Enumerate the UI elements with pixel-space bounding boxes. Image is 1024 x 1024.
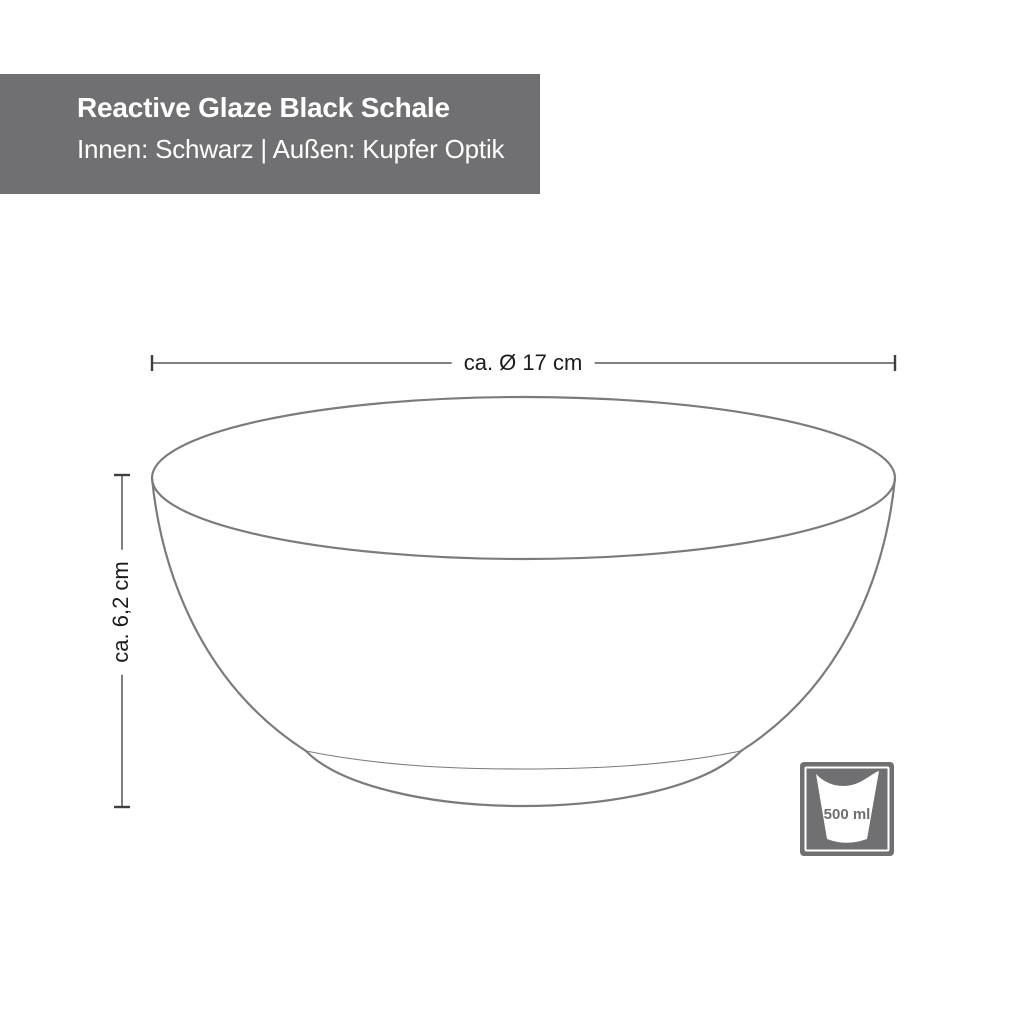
dimension-lines — [114, 355, 895, 807]
bowl-right-wall — [741, 478, 895, 751]
bowl-technical-drawing — [0, 0, 1024, 1024]
bowl-left-wall — [152, 478, 306, 751]
capacity-cup-icon: 500 ml — [800, 762, 894, 856]
bowl-foot-bottom — [306, 751, 741, 806]
bowl-outline — [152, 397, 895, 806]
height-label: ca. 6,2 cm — [106, 549, 136, 674]
capacity-label: 500 ml — [824, 806, 871, 823]
capacity-badge: 500 ml — [800, 762, 894, 856]
bowl-rim-ellipse — [152, 397, 895, 559]
product-dimension-infographic: Reactive Glaze Black Schale Innen: Schwa… — [0, 0, 1024, 1024]
diameter-label: ca. Ø 17 cm — [452, 348, 595, 378]
bowl-foot-top-line — [306, 751, 741, 769]
